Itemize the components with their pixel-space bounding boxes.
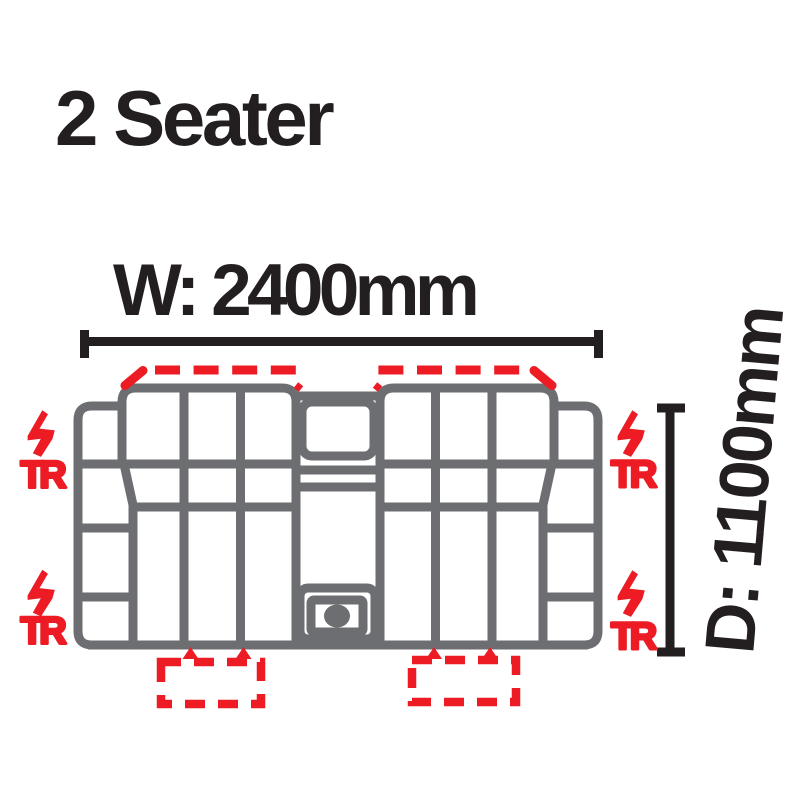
- svg-text:TR: TR: [21, 611, 67, 653]
- svg-text:TR: TR: [21, 455, 67, 497]
- svg-text:W: 2400mm: W: 2400mm: [113, 250, 476, 331]
- svg-text:2 Seater: 2 Seater: [55, 74, 334, 162]
- svg-text:D: 1100mm: D: 1100mm: [690, 305, 798, 657]
- svg-text:TR: TR: [611, 616, 657, 658]
- svg-text:TR: TR: [611, 454, 657, 496]
